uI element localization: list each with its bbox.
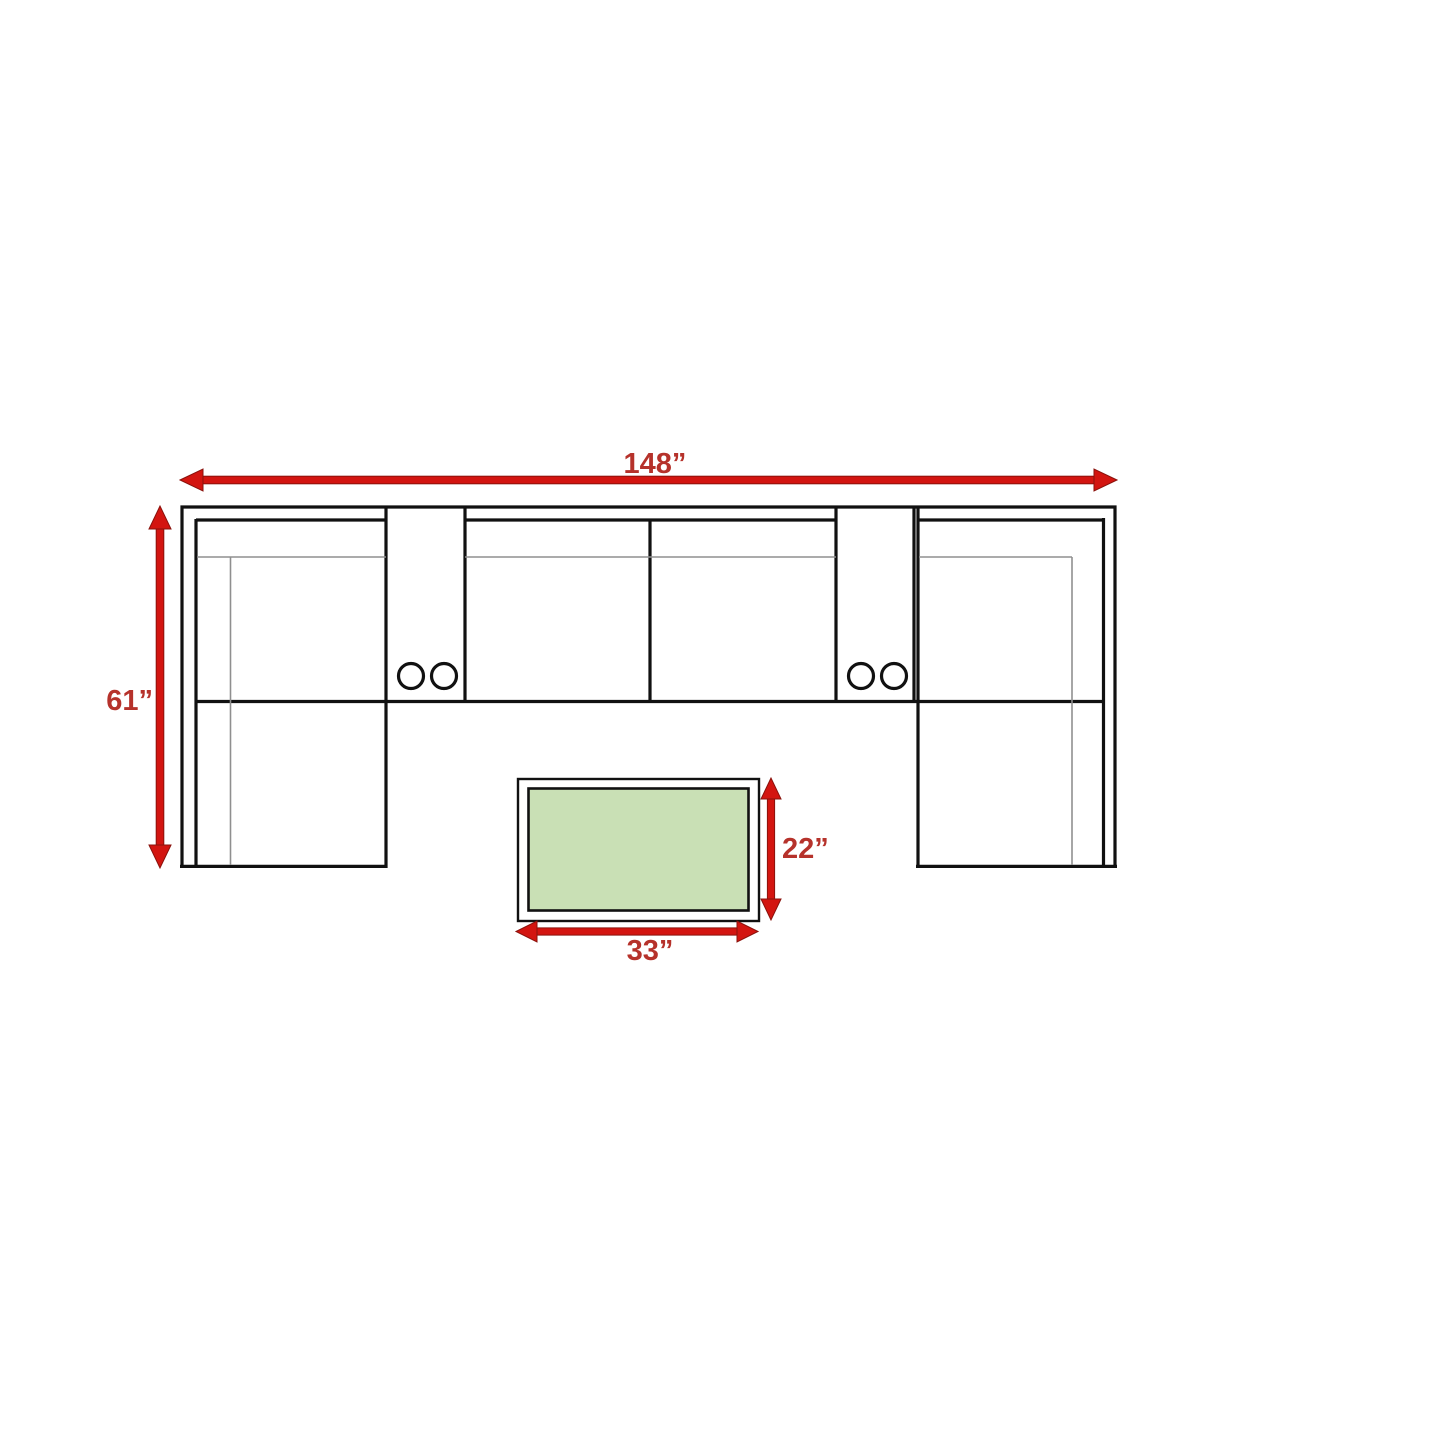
arrow-head-right-icon xyxy=(1094,469,1117,491)
arrow-head-down-icon xyxy=(761,899,781,920)
furniture-dimension-diagram: 148” 61” 22” 33” xyxy=(0,0,1445,1445)
diagram-svg: 148” 61” 22” 33” xyxy=(0,0,1445,1445)
arrow-head-down-icon xyxy=(149,845,171,868)
coffee-table xyxy=(518,779,759,921)
cup-holder-icon xyxy=(849,664,874,689)
table-width-dimension: 33” xyxy=(516,921,758,967)
cup-holder-icon xyxy=(399,664,424,689)
sofa-depth-label: 61” xyxy=(106,685,153,717)
arrow-head-up-icon xyxy=(761,778,781,799)
table-depth-label: 22” xyxy=(782,833,829,865)
arrow-head-up-icon xyxy=(149,506,171,529)
sofa-width-label: 148” xyxy=(624,448,687,480)
arrow-head-left-icon xyxy=(180,469,203,491)
arrow-head-left-icon xyxy=(516,921,537,942)
table-depth-dimension: 22” xyxy=(761,778,829,920)
arrow-head-right-icon xyxy=(737,921,758,942)
coffee-table-top xyxy=(529,789,749,911)
sofa-width-dimension: 148” xyxy=(180,448,1117,491)
sofa-depth-dimension: 61” xyxy=(106,506,171,868)
cup-holder-icon xyxy=(432,664,457,689)
table-width-label: 33” xyxy=(627,935,674,967)
cup-holder-icon xyxy=(882,664,907,689)
table-depth-arrow-shaft xyxy=(767,797,774,901)
sofa-depth-arrow-shaft xyxy=(156,527,164,846)
